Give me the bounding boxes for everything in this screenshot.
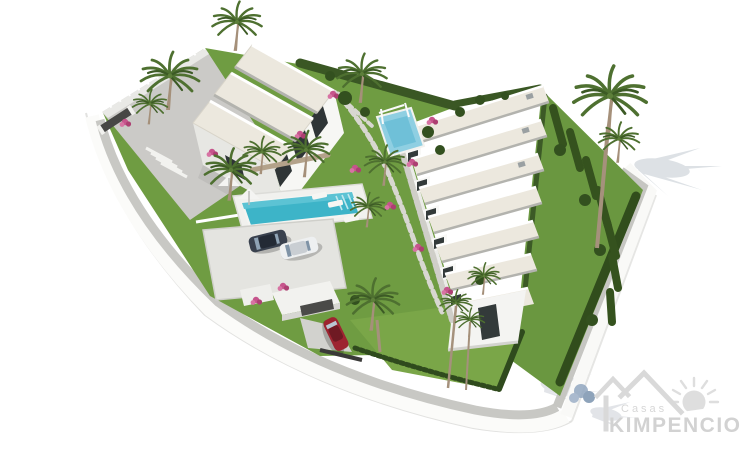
render-canvas: Casas KIMPENCIO: [0, 0, 750, 450]
site-plan: Casas KIMPENCIO: [0, 0, 750, 450]
brand-main-text: KIMPENCIO: [609, 414, 742, 437]
